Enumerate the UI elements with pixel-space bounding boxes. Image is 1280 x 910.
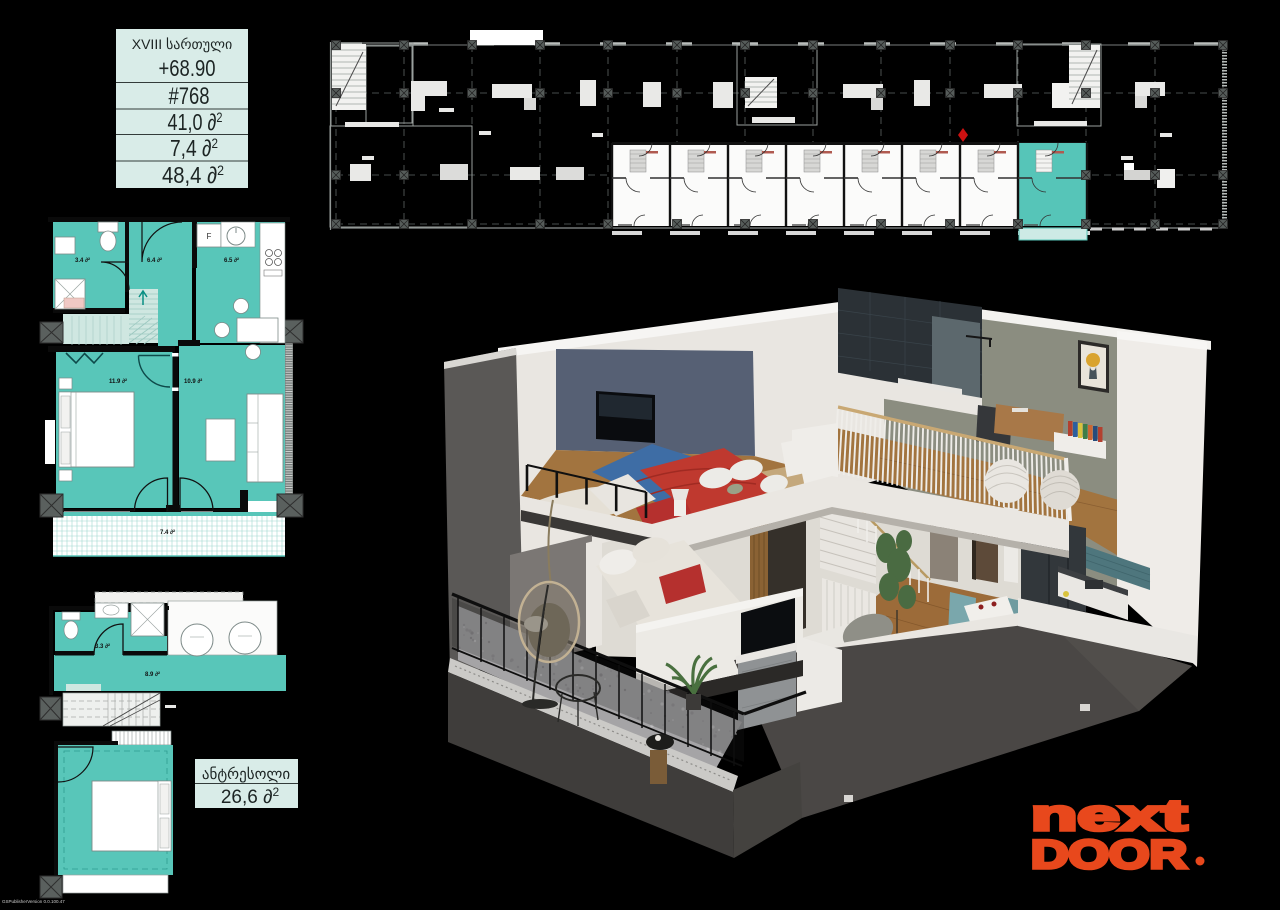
svg-text:6.4 ∂²: 6.4 ∂² <box>147 257 162 264</box>
svg-text:8.9 ∂²: 8.9 ∂² <box>145 671 160 678</box>
svg-text:6.5 ∂²: 6.5 ∂² <box>224 257 239 264</box>
svg-text:10.9 ∂²: 10.9 ∂² <box>184 378 202 385</box>
svg-text:ანტრესოლი: ანტრესოლი <box>202 766 290 783</box>
svg-text:XVIII სართული: XVIII სართული <box>132 36 232 53</box>
svg-text:GSPublisherVersion 0.0.100.47: GSPublisherVersion 0.0.100.47 <box>2 899 65 904</box>
svg-text:11.9 ∂²: 11.9 ∂² <box>109 378 127 385</box>
svg-text:3.4 ∂²: 3.4 ∂² <box>75 257 90 264</box>
svg-text:+68.90: +68.90 <box>159 55 216 81</box>
svg-text:7.4 ∂²: 7.4 ∂² <box>160 529 175 536</box>
svg-text:48,4 ∂2: 48,4 ∂2 <box>162 162 224 188</box>
svg-text:F: F <box>207 232 212 241</box>
svg-text:26,6 ∂2: 26,6 ∂2 <box>221 785 280 808</box>
svg-text:#768: #768 <box>169 83 210 110</box>
svg-text:7,4 ∂2: 7,4 ∂2 <box>170 135 218 161</box>
svg-text:DOOR: DOOR <box>1031 833 1187 877</box>
svg-text:41,0 ∂2: 41,0 ∂2 <box>168 109 223 135</box>
svg-text:3.3 ∂²: 3.3 ∂² <box>95 643 110 650</box>
